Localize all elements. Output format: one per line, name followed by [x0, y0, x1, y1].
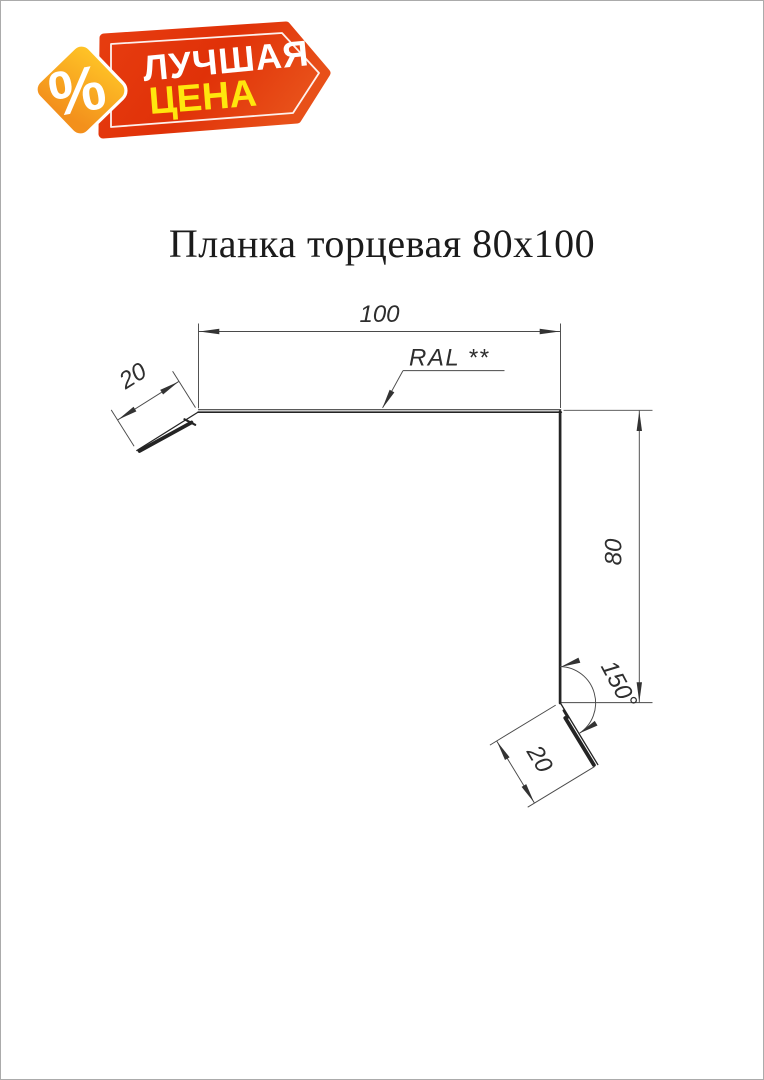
angle-arc [560, 667, 596, 734]
arrowhead-icon [522, 784, 537, 804]
product-card-page: ЛУЧШАЯ ЦЕНА % Планка торцевая 80x100 [0, 0, 764, 1080]
dim-value-20-left: 20 [114, 357, 152, 395]
extension-line [490, 705, 556, 745]
dim-value-80: 80 [601, 538, 628, 565]
dim-value-100: 100 [359, 301, 400, 328]
arrowhead-icon [578, 721, 598, 736]
dimension-bottom-flange: 20 [490, 705, 595, 807]
profile-outline [137, 410, 598, 765]
coating-callout: RAL ** [380, 345, 505, 410]
left-flange-hem [140, 423, 192, 452]
arrowhead-icon [637, 411, 642, 431]
left-flange-line [137, 412, 199, 451]
extension-line [173, 371, 196, 407]
angle-value: 150° [595, 656, 642, 713]
arrowhead-icon [540, 329, 560, 334]
arrowhead-icon [199, 329, 219, 334]
arrowhead-icon [117, 407, 137, 422]
coating-label: RAL ** [409, 345, 490, 372]
technical-drawing: 100 RAL ** 80 20 [1, 1, 764, 1080]
dimension-left-flange: 20 [111, 357, 195, 446]
arrowhead-icon [160, 379, 180, 394]
dimension-right-height: 80 [562, 410, 653, 702]
dimension-angle: 150° [560, 656, 643, 736]
arrowhead-icon [495, 740, 510, 760]
extension-line [111, 410, 134, 446]
arrowhead-icon [380, 390, 394, 410]
dimension-top-width: 100 [199, 301, 561, 408]
bottom-flange-line [560, 703, 598, 765]
dim-value-20-bottom: 20 [520, 740, 558, 778]
